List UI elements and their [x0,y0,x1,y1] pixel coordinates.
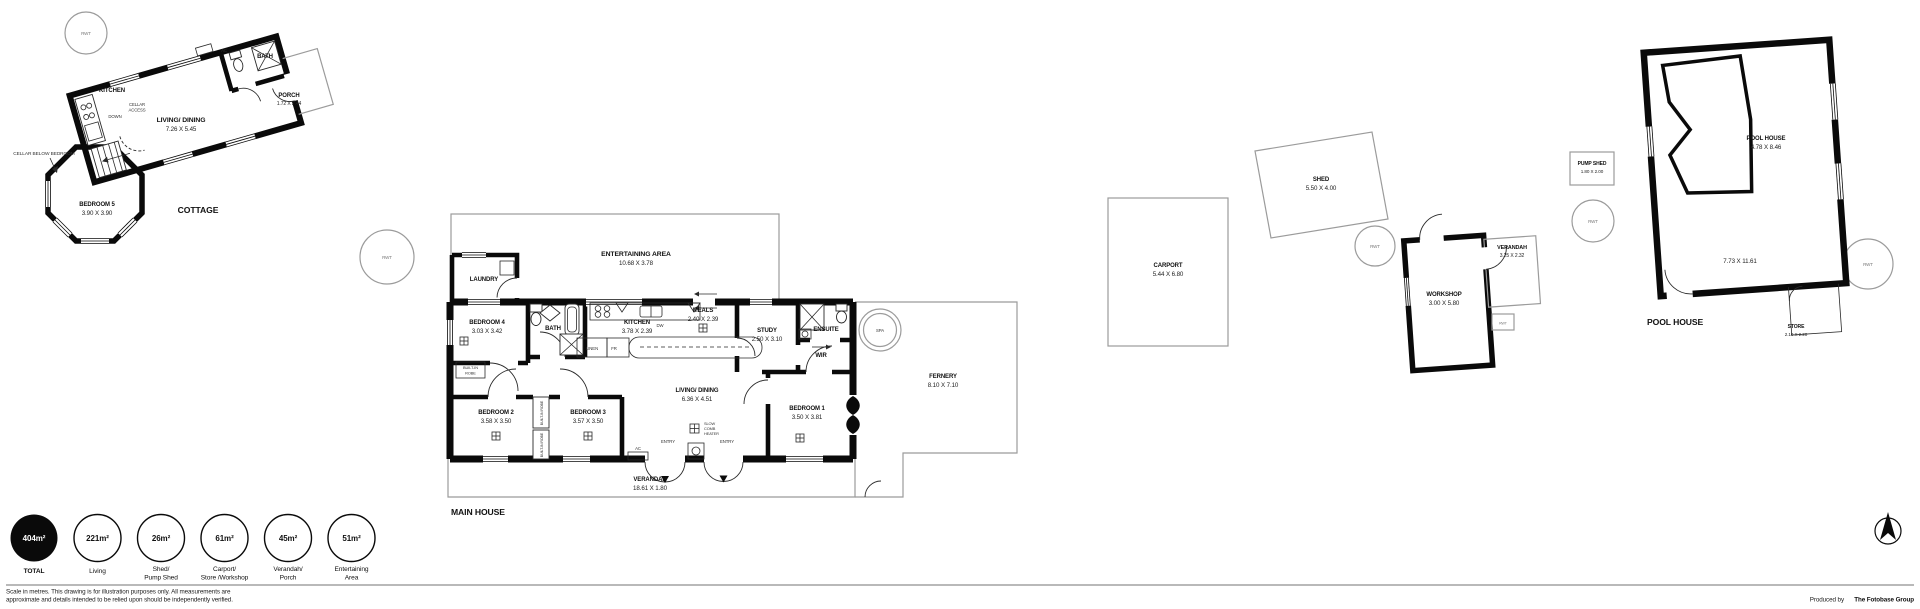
legend-item-verandah: 45m² Verandah/ Porch [265,515,312,582]
plan-shape [595,306,601,312]
pool-house-room-label: POOL HOUSE [1747,136,1786,142]
plan-shape [836,304,847,311]
cottage-porch-dims: 1.72 X 2.44 [277,101,302,107]
appliance-icon [500,261,514,275]
pool-house-building [1640,39,1855,344]
bathtub-icon [565,304,579,335]
cottage-living-dims: 7.26 X 5.45 [166,126,197,133]
rwt-label: RWT [1370,244,1380,249]
verandah-dims: 18.61 X 1.80 [633,485,668,492]
bedroom1-dims: 3.50 X 3.81 [792,414,823,421]
cellar-access-label: CELLAR [129,102,145,107]
verandah-label: VERANDAH [633,477,666,483]
produced-by-label: Produced by [1810,597,1845,604]
cottage-porch-label: PORCH [278,93,299,99]
pool-house-room-dims: 4.78 X 8.46 [1751,144,1782,151]
plan-shape [604,312,610,318]
plan-shape [692,447,700,455]
fr-label: FR [611,346,617,351]
legend-label: TOTAL [24,568,45,575]
plan-shape [513,278,522,298]
legend-item-shed: 26m² Shed/ Pump Shed [138,515,185,582]
legend-item-entertaining: 51m² Entertaining Area [328,515,375,582]
store-label: STORE [1788,324,1805,330]
cottage-living-label: LIVING/ DINING [157,117,206,124]
bedroom3-dims: 3.57 X 3.50 [573,418,604,425]
rwt-label: RWT [81,31,91,36]
plan-shape [232,58,244,73]
bedroom2-label: BEDROOM 2 [478,410,514,416]
plan-shape [1666,289,1693,301]
shower-icon [560,334,583,355]
plan-shape [629,337,762,358]
legend-label: Verandah/ [273,566,302,573]
floor-plan-page: RWT RWT RWT RWT RWT [0,0,1920,609]
main-house-interior-walls [450,302,853,459]
pool-outline [1662,56,1755,198]
legend-item-total: 404m² TOTAL [11,515,58,576]
entertaining-dims: 10.68 X 3.78 [619,260,654,267]
entertaining-label: ENTERTAINING AREA [601,251,671,258]
floor-plan-drawing: RWT RWT RWT RWT RWT [0,0,1920,609]
area-legend: 404m² TOTAL 221m² Living 26m² Shed/ Pump… [11,515,376,582]
linen-label: LINEN [586,346,598,351]
plan-shape [802,331,808,337]
plan-shape [806,346,832,372]
bedroom4-label: BEDROOM 4 [469,320,505,326]
cottage-bedroom5-dims: 3.90 X 3.90 [82,210,113,217]
spa-label: SPA [876,328,884,333]
plan-shape [865,481,881,497]
french-door-icon [846,395,860,435]
workshop-building [1398,208,1544,371]
robe-label: ROBE [465,371,476,376]
robe-label: BUILT-IN [463,365,478,370]
toilet-icon [229,50,245,73]
legend-label: Carport/ [213,566,236,573]
plan-shape [693,297,715,308]
plan-shape [1419,233,1444,245]
legend-value: 26m² [152,534,171,543]
disclaimer-line1: Scale in metres. This drawing is for ill… [6,589,231,596]
plan-shape [645,455,685,464]
fernery-label: FERNERY [929,374,957,380]
pool-house-overall-dims: 7.73 X 11.61 [1723,258,1757,265]
ac-label: AC [221,48,227,53]
main-house-building [446,214,1018,497]
wir-label: WIR [815,353,827,359]
fernery-dims: 8.10 X 7.10 [928,382,959,389]
plan-shape [694,292,699,297]
bedroom2-dims: 3.58 X 3.50 [481,418,512,425]
workshop-verandah-dims: 3.25 X 2.32 [1500,253,1525,259]
plan-shape [846,396,860,415]
cottage-bath-label: BATH [257,54,273,60]
workshop-label: WORKSHOP [1426,292,1461,298]
cellar-access-label: ACCESS [128,108,145,113]
bedroom4-dims: 3.03 X 3.42 [472,328,503,335]
main-house-title: MAIN HOUSE [451,507,505,517]
robe-vertical-label: BUILT-IN ROBE [540,400,544,425]
carport-label: CARPORT [1154,263,1183,269]
north-compass-icon [1875,512,1901,544]
kitchen-dims: 3.78 X 2.39 [622,328,653,335]
entertaining-area-outline [451,214,779,302]
plan-shape [120,131,145,156]
legend-value: 404m² [23,534,46,543]
cellar-note-label: CELLAR BELOW BEDROOM [13,151,75,157]
shed-label: SHED [1313,177,1330,183]
disclaimer-line2: approximate and details intended to be r… [6,597,233,604]
cottage-kitchen-label: KITCHEN [99,88,125,94]
kitchen-label: KITCHEN [624,320,650,326]
legend-label: Entertaining [335,566,369,573]
legend-label: Porch [280,575,297,582]
plan-shape [540,305,560,321]
door-arc [238,84,260,106]
legend-label: Living [89,568,106,575]
plan-shape [531,313,541,326]
kitchen-bench [590,303,700,320]
legend-label: Shed/ [153,566,170,573]
ensuite-label: ENSUITE [813,327,838,333]
entry-label: ENTRY [720,439,734,444]
plan-shape [799,329,811,339]
main-house-outer-walls [450,302,853,459]
down-label: DOWN [108,114,121,119]
plan-shape [1480,247,1490,270]
toilet-icon [836,304,847,323]
bedroom1-label: BEDROOM 1 [789,406,825,412]
legend-label: Store /Workshop [201,575,249,582]
legend-item-carport: 61m² Carport/ Store /Workshop [201,515,249,582]
plan-shape [837,311,847,323]
slow-combustion-heater-icon [688,424,704,459]
plan-shape [490,363,518,391]
plan-shape [826,345,831,350]
plan-shape [595,312,601,318]
legend-label: Pump Shed [144,575,178,582]
legend-item-living: 221m² Living [74,515,121,576]
cottage-title: COTTAGE [178,205,219,215]
cottage-bedroom5-label: BEDROOM 5 [79,202,115,208]
living-label: LIVING/ DINING [676,388,719,394]
bedroom3-label: BEDROOM 3 [570,410,606,416]
legend-value: 51m² [342,534,361,543]
entry-arrow [812,345,831,350]
producer-name: The Fotobase Group [1854,597,1914,604]
rwt-label: RWT [1863,262,1873,267]
plan-shape [560,369,588,397]
rwt-label: RWT [1499,322,1508,326]
dw-label: DW [657,323,665,328]
plan-shape [604,306,610,312]
store-dims: 2.10 X 2.20 [1785,332,1808,337]
laundry-label: LAUNDRY [470,277,499,283]
plan-shape [1880,512,1896,540]
meals-dims: 2.40 X 2.39 [688,316,719,323]
legend-value: 61m² [215,534,234,543]
workshop-dims: 3.00 X 5.80 [1429,300,1460,307]
pool-house-title: POOL HOUSE [1647,317,1704,327]
kitchen-island [629,337,762,358]
plan-shape [846,415,860,434]
rainwater-tank-icon [65,12,1893,289]
heater-label: HEATER [704,431,719,436]
carport-dims: 5.44 X 6.80 [1153,271,1184,278]
rwt-label: RWT [382,255,392,260]
meals-label: MEALS [693,308,714,314]
living-dims: 6.36 X 4.51 [682,396,713,403]
plan-shape [704,455,743,464]
vanity-icon [799,329,811,339]
pump-shed-label: PUMP SHED [1578,161,1607,167]
study-label: STUDY [757,328,777,334]
plan-shape [530,304,542,312]
toilet-icon [530,304,542,326]
legend-label: Area [345,575,359,582]
pump-shed-dims: 1.80 X 2.00 [1581,169,1604,174]
robe-vertical-label: BUILT-IN ROBE [540,432,544,457]
ac-label: AC [635,446,641,451]
vanity-icon [540,305,560,321]
study-dims: 2.50 X 3.10 [752,336,783,343]
shed-dims: 5.50 X 4.00 [1306,185,1337,192]
entry-label: ENTRY [661,439,675,444]
bath-label: BATH [545,326,561,332]
legend-value: 45m² [279,534,298,543]
plan-shape [744,380,768,404]
legend-value: 221m² [86,534,109,543]
workshop-verandah-label: VERANDAH [1497,245,1527,251]
rwt-label: RWT [1588,219,1598,224]
